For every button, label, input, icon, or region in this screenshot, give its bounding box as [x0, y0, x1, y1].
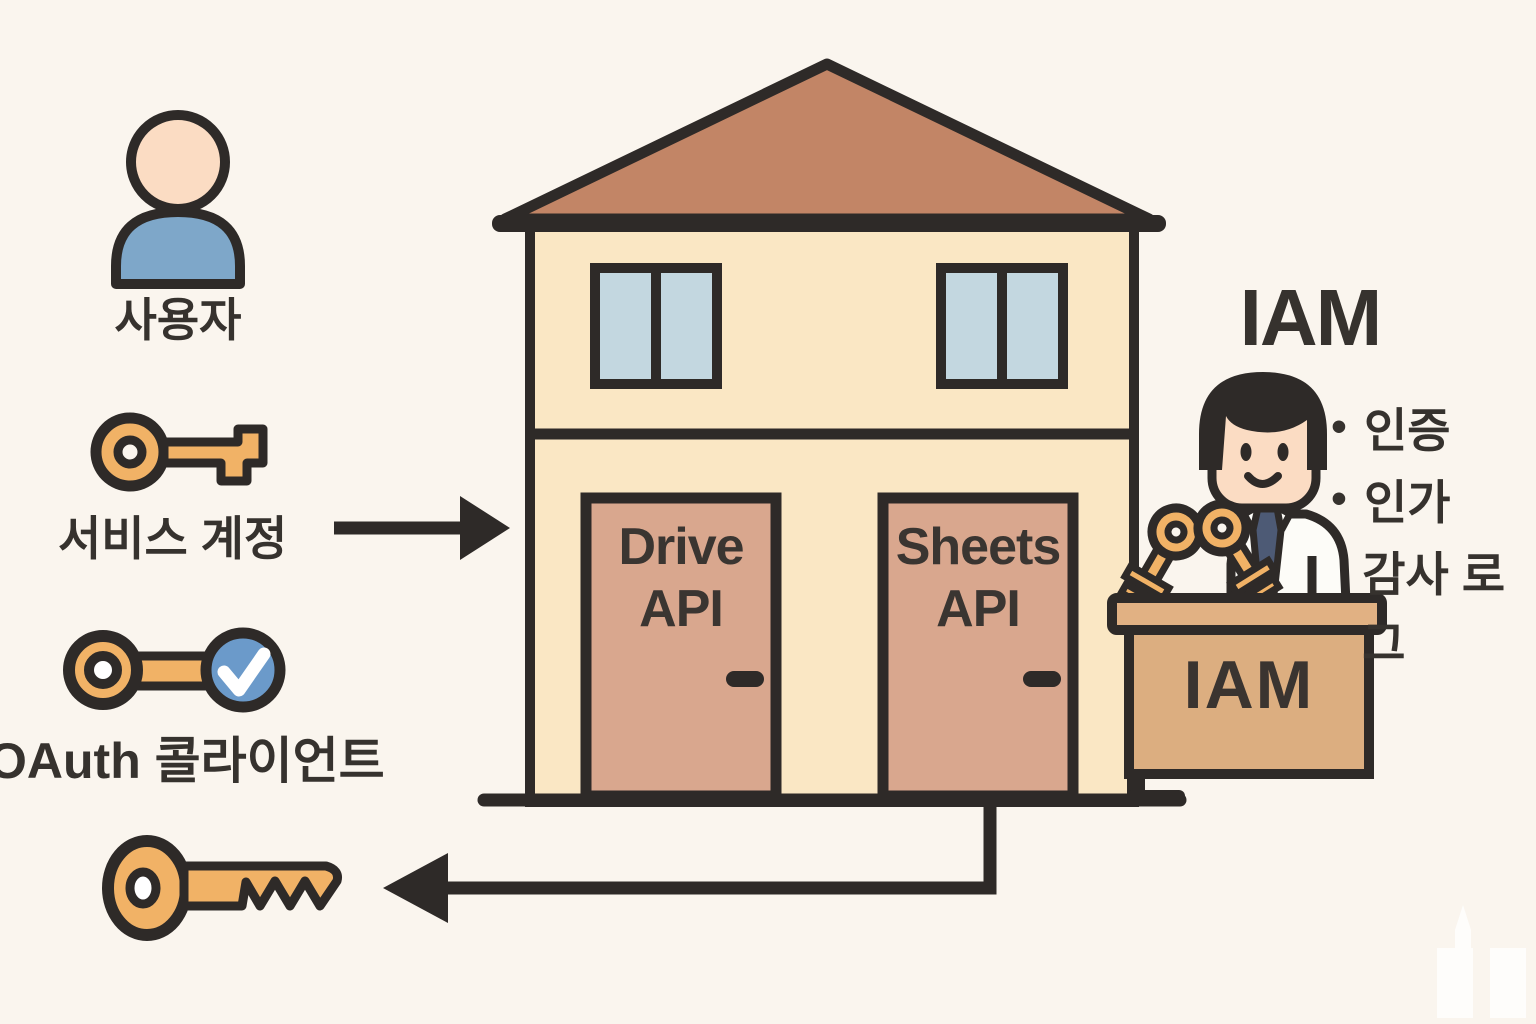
- sheets-api-door-label: Sheets API: [883, 516, 1073, 641]
- service-account-key-icon: [96, 418, 263, 486]
- service-account-label: 서비스 계정: [58, 514, 287, 563]
- feature-label: 감사 로그: [1362, 536, 1536, 674]
- watermark: [1437, 905, 1526, 1018]
- returned-key-arrow: [383, 800, 990, 923]
- iam-title: IAM: [1228, 276, 1392, 360]
- window-right: [941, 268, 1063, 384]
- house-roof: [505, 64, 1149, 219]
- oauth-client-label: OAuth 콜라이언트: [0, 735, 385, 788]
- iam-feature-authorization: • 인가: [1326, 464, 1450, 533]
- returned-key-icon: [108, 841, 338, 935]
- user-label: 사용자: [98, 296, 258, 344]
- house-eave: [492, 215, 1166, 232]
- clerk-eye-left: [1241, 443, 1252, 461]
- bullet-dot: •: [1326, 474, 1352, 524]
- service-account-arrow: [334, 496, 510, 560]
- desk-foot: [1127, 790, 1185, 803]
- iam-desk-label: IAM: [1130, 650, 1368, 721]
- door-handle: [726, 671, 764, 687]
- person-icon: [116, 115, 240, 284]
- house: [484, 64, 1180, 802]
- drive-api-door-label: Drive API: [586, 516, 776, 641]
- door-handle: [1023, 671, 1061, 687]
- clerk-eye-right: [1278, 443, 1289, 461]
- feature-label: 인증: [1364, 392, 1450, 461]
- window-left: [595, 268, 717, 384]
- check-icon: [206, 633, 280, 707]
- iam-feature-authentication: • 인증: [1326, 392, 1450, 461]
- diagram-canvas: 사용자 서비스 계정 OAuth 콜라이언트 Drive API Sheets …: [0, 0, 1536, 1024]
- oauth-key-check-icon: [69, 633, 280, 707]
- bullet-dot: •: [1326, 402, 1352, 452]
- feature-label: 인가: [1364, 464, 1450, 533]
